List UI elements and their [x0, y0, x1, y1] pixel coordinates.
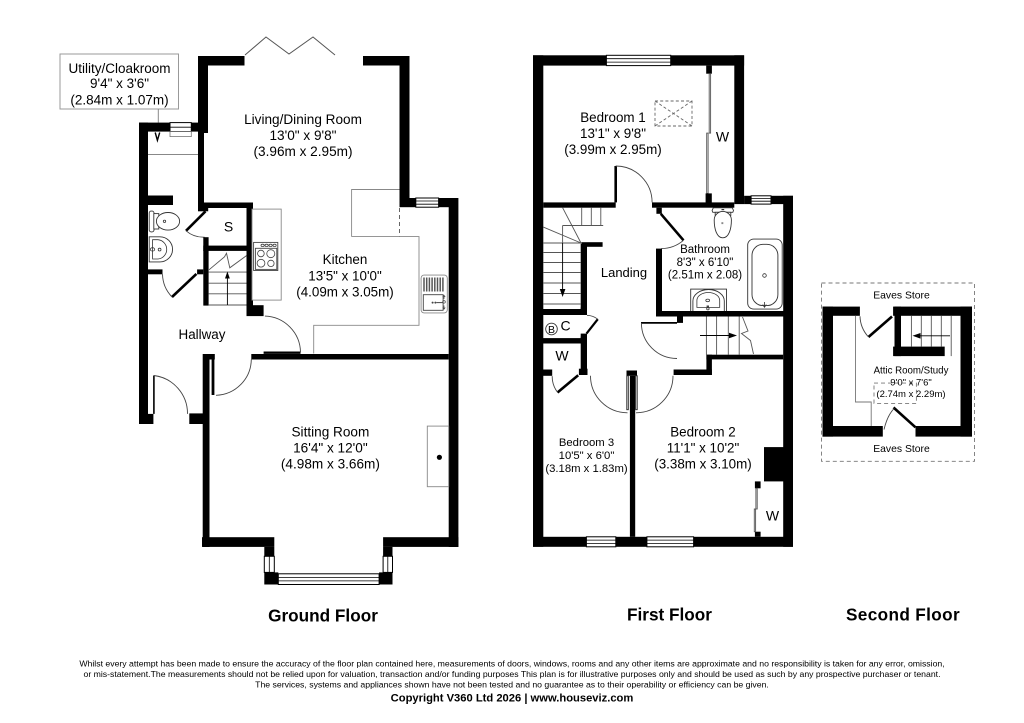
svg-text:Bedroom 3: Bedroom 3: [559, 437, 614, 449]
svg-text:The services, systems and appl: The services, systems and appliances sho…: [255, 680, 769, 690]
svg-text:Eaves Store: Eaves Store: [873, 444, 930, 455]
svg-text:(4.09m x 3.05m): (4.09m x 3.05m): [296, 285, 394, 300]
svg-text:Kitchen: Kitchen: [323, 252, 368, 267]
svg-text:13'5" x 10'0": 13'5" x 10'0": [308, 269, 382, 284]
svg-text:Bathroom: Bathroom: [680, 244, 730, 256]
svg-text:Bedroom 1: Bedroom 1: [580, 110, 646, 125]
svg-text:or mis-statement.The measureme: or mis-statement.The measurements should…: [83, 669, 940, 679]
svg-text:(3.96m x 2.95m): (3.96m x 2.95m): [254, 144, 353, 159]
svg-text:Hallway: Hallway: [179, 327, 226, 342]
svg-text:Copyright V360 Ltd 2026 | www.: Copyright V360 Ltd 2026 | www.houseviz.c…: [391, 693, 634, 705]
svg-text:9'4" x 3'6": 9'4" x 3'6": [90, 76, 149, 91]
svg-text:Eaves Store: Eaves Store: [873, 290, 930, 301]
svg-text:(3.99m x 2.95m): (3.99m x 2.95m): [564, 142, 662, 157]
svg-text:C: C: [560, 318, 570, 334]
svg-text:(2.74m x 2.29m): (2.74m x 2.29m): [876, 389, 945, 400]
svg-text:10'5" x 6'0": 10'5" x 6'0": [559, 450, 615, 462]
svg-text:Second Floor: Second Floor: [846, 605, 960, 625]
svg-text:S: S: [224, 219, 233, 235]
svg-text:(3.38m x 3.10m): (3.38m x 3.10m): [654, 457, 752, 472]
svg-text:W: W: [716, 129, 730, 145]
svg-text:Living/Dining Room: Living/Dining Room: [244, 112, 362, 127]
svg-text:W: W: [555, 348, 569, 364]
svg-text:13'1" x 9'8": 13'1" x 9'8": [580, 126, 646, 141]
svg-text:Utility/Cloakroom: Utility/Cloakroom: [68, 61, 170, 76]
svg-text:9'0" x 7'6": 9'0" x 7'6": [890, 377, 932, 388]
svg-text:11'1" x 10'2": 11'1" x 10'2": [667, 441, 740, 456]
svg-text:Bedroom 2: Bedroom 2: [670, 425, 736, 440]
svg-text:W: W: [766, 508, 780, 524]
svg-text:Ground Floor: Ground Floor: [268, 606, 378, 626]
svg-text:16'4" x 12'0": 16'4" x 12'0": [293, 441, 368, 456]
svg-text:Whilst every attempt has been: Whilst every attempt has been made to en…: [79, 659, 944, 669]
svg-text:First Floor: First Floor: [627, 605, 712, 625]
svg-text:(2.51m x 2.08): (2.51m x 2.08): [668, 270, 742, 282]
svg-text:B: B: [548, 324, 555, 336]
svg-text:Attic Room/Study: Attic Room/Study: [874, 366, 949, 377]
svg-text:(3.18m x 1.83m): (3.18m x 1.83m): [545, 463, 627, 475]
svg-text:Landing: Landing: [601, 265, 647, 280]
svg-text:(2.84m x 1.07m): (2.84m x 1.07m): [70, 93, 168, 108]
svg-text:8'3" x 6'10": 8'3" x 6'10": [677, 257, 734, 269]
svg-text:Sitting Room: Sitting Room: [291, 425, 369, 440]
svg-text:(4.98m x 3.66m): (4.98m x 3.66m): [281, 457, 380, 472]
svg-text:13'0" x 9'8": 13'0" x 9'8": [270, 128, 337, 143]
